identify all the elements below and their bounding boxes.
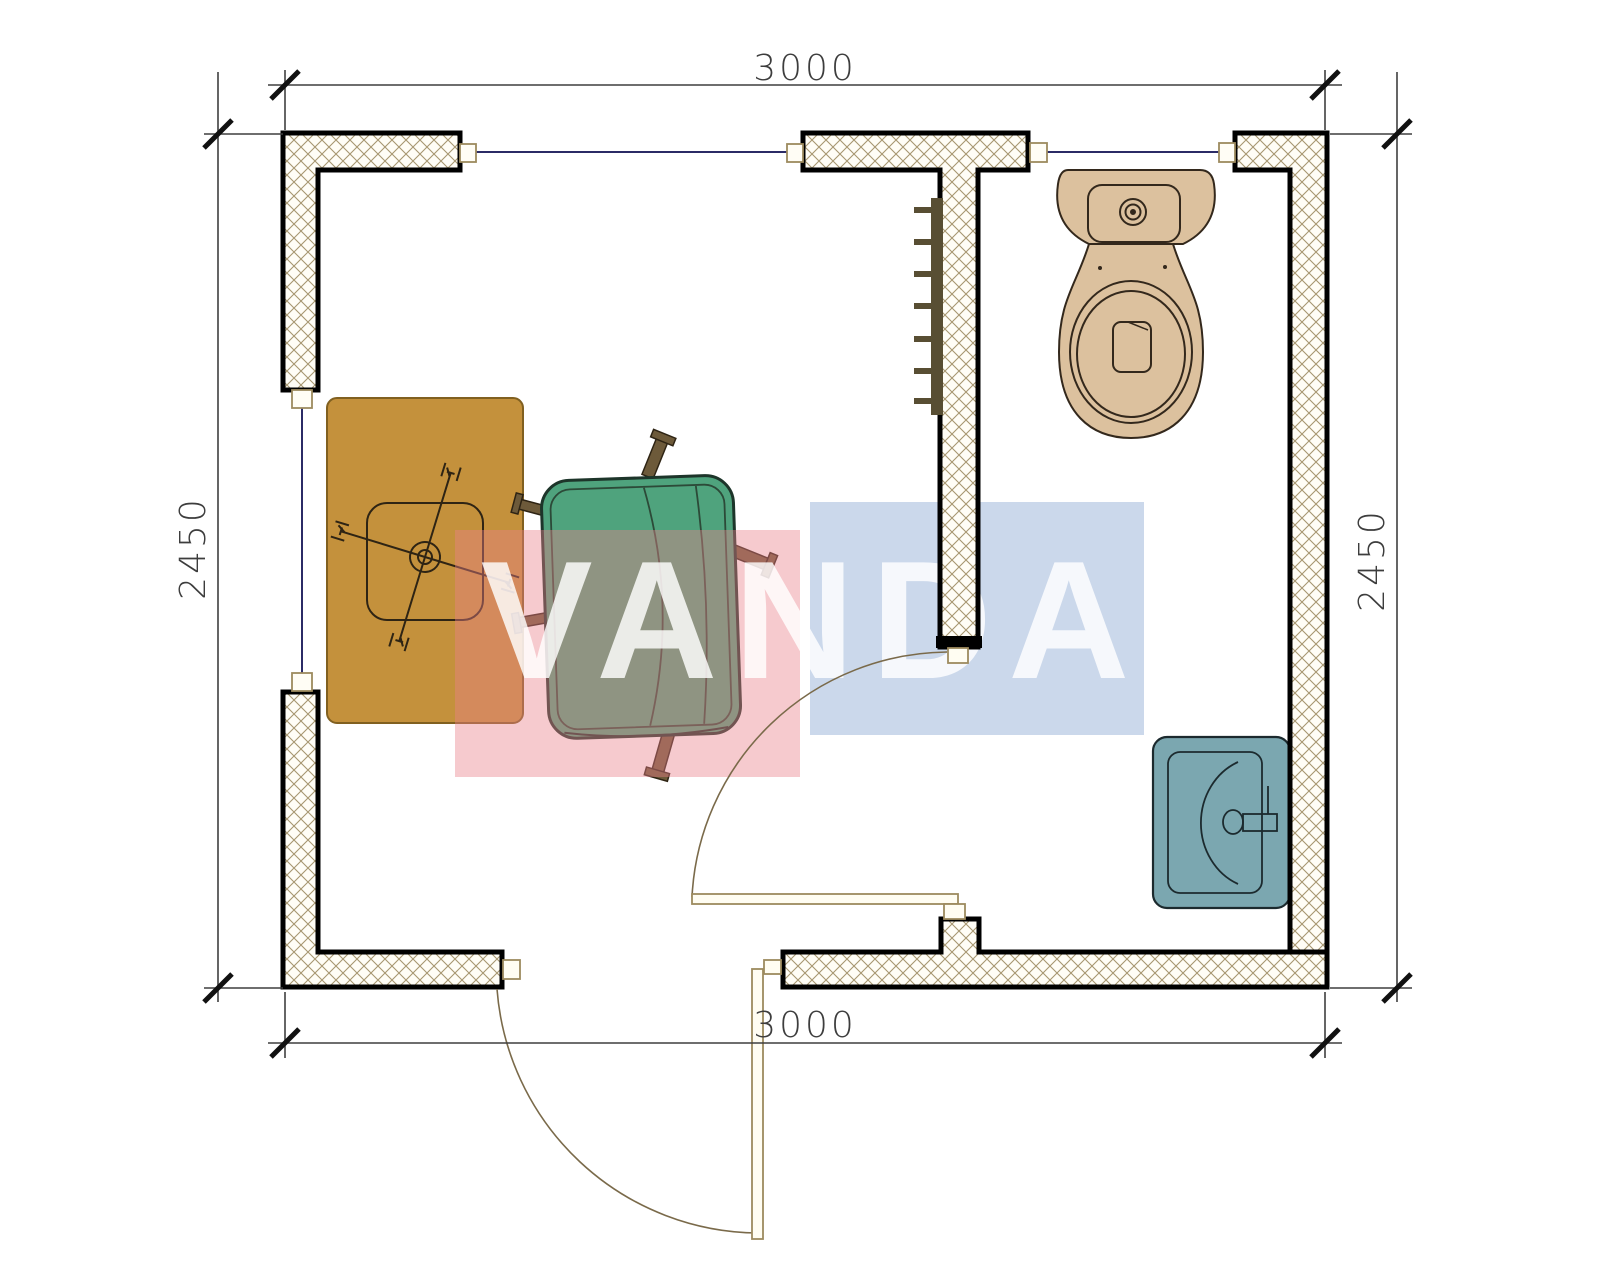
dimension-top-label: 3000	[753, 48, 857, 89]
wall-top-left	[283, 133, 460, 390]
interior-door-frame-bottom	[944, 904, 965, 919]
exterior-door-swing-arc	[497, 989, 758, 1233]
interior-door-frame-top	[948, 648, 968, 663]
dimension-bottom-label: 3000	[753, 1005, 857, 1046]
radiator	[914, 198, 943, 415]
dimension-right: 2450	[1330, 72, 1412, 1002]
exterior-door-frame-left	[503, 960, 520, 979]
interior-door-leaf	[692, 894, 958, 904]
partition-end-cap	[936, 636, 982, 648]
exterior-door	[497, 960, 781, 1239]
dimension-top: 3000	[268, 48, 1342, 130]
window-left	[292, 390, 312, 691]
dimension-left: 2450	[173, 72, 283, 1002]
window-top-right	[1030, 143, 1235, 162]
watermark-text: VANDA	[481, 526, 1146, 714]
dimension-right-label: 2450	[1352, 508, 1393, 612]
floor-plan-page: VANDA	[0, 0, 1600, 1280]
wall-bottom-right	[783, 919, 1327, 987]
dimension-left-label: 2450	[173, 496, 214, 600]
dimension-bottom: 3000	[268, 992, 1342, 1058]
exterior-door-frame-right	[764, 960, 781, 974]
toilet	[1057, 170, 1215, 438]
window-top-left	[460, 144, 803, 162]
watermark: VANDA	[455, 502, 1145, 777]
floor-plan-canvas: VANDA	[0, 0, 1600, 1280]
sink	[1153, 737, 1290, 908]
